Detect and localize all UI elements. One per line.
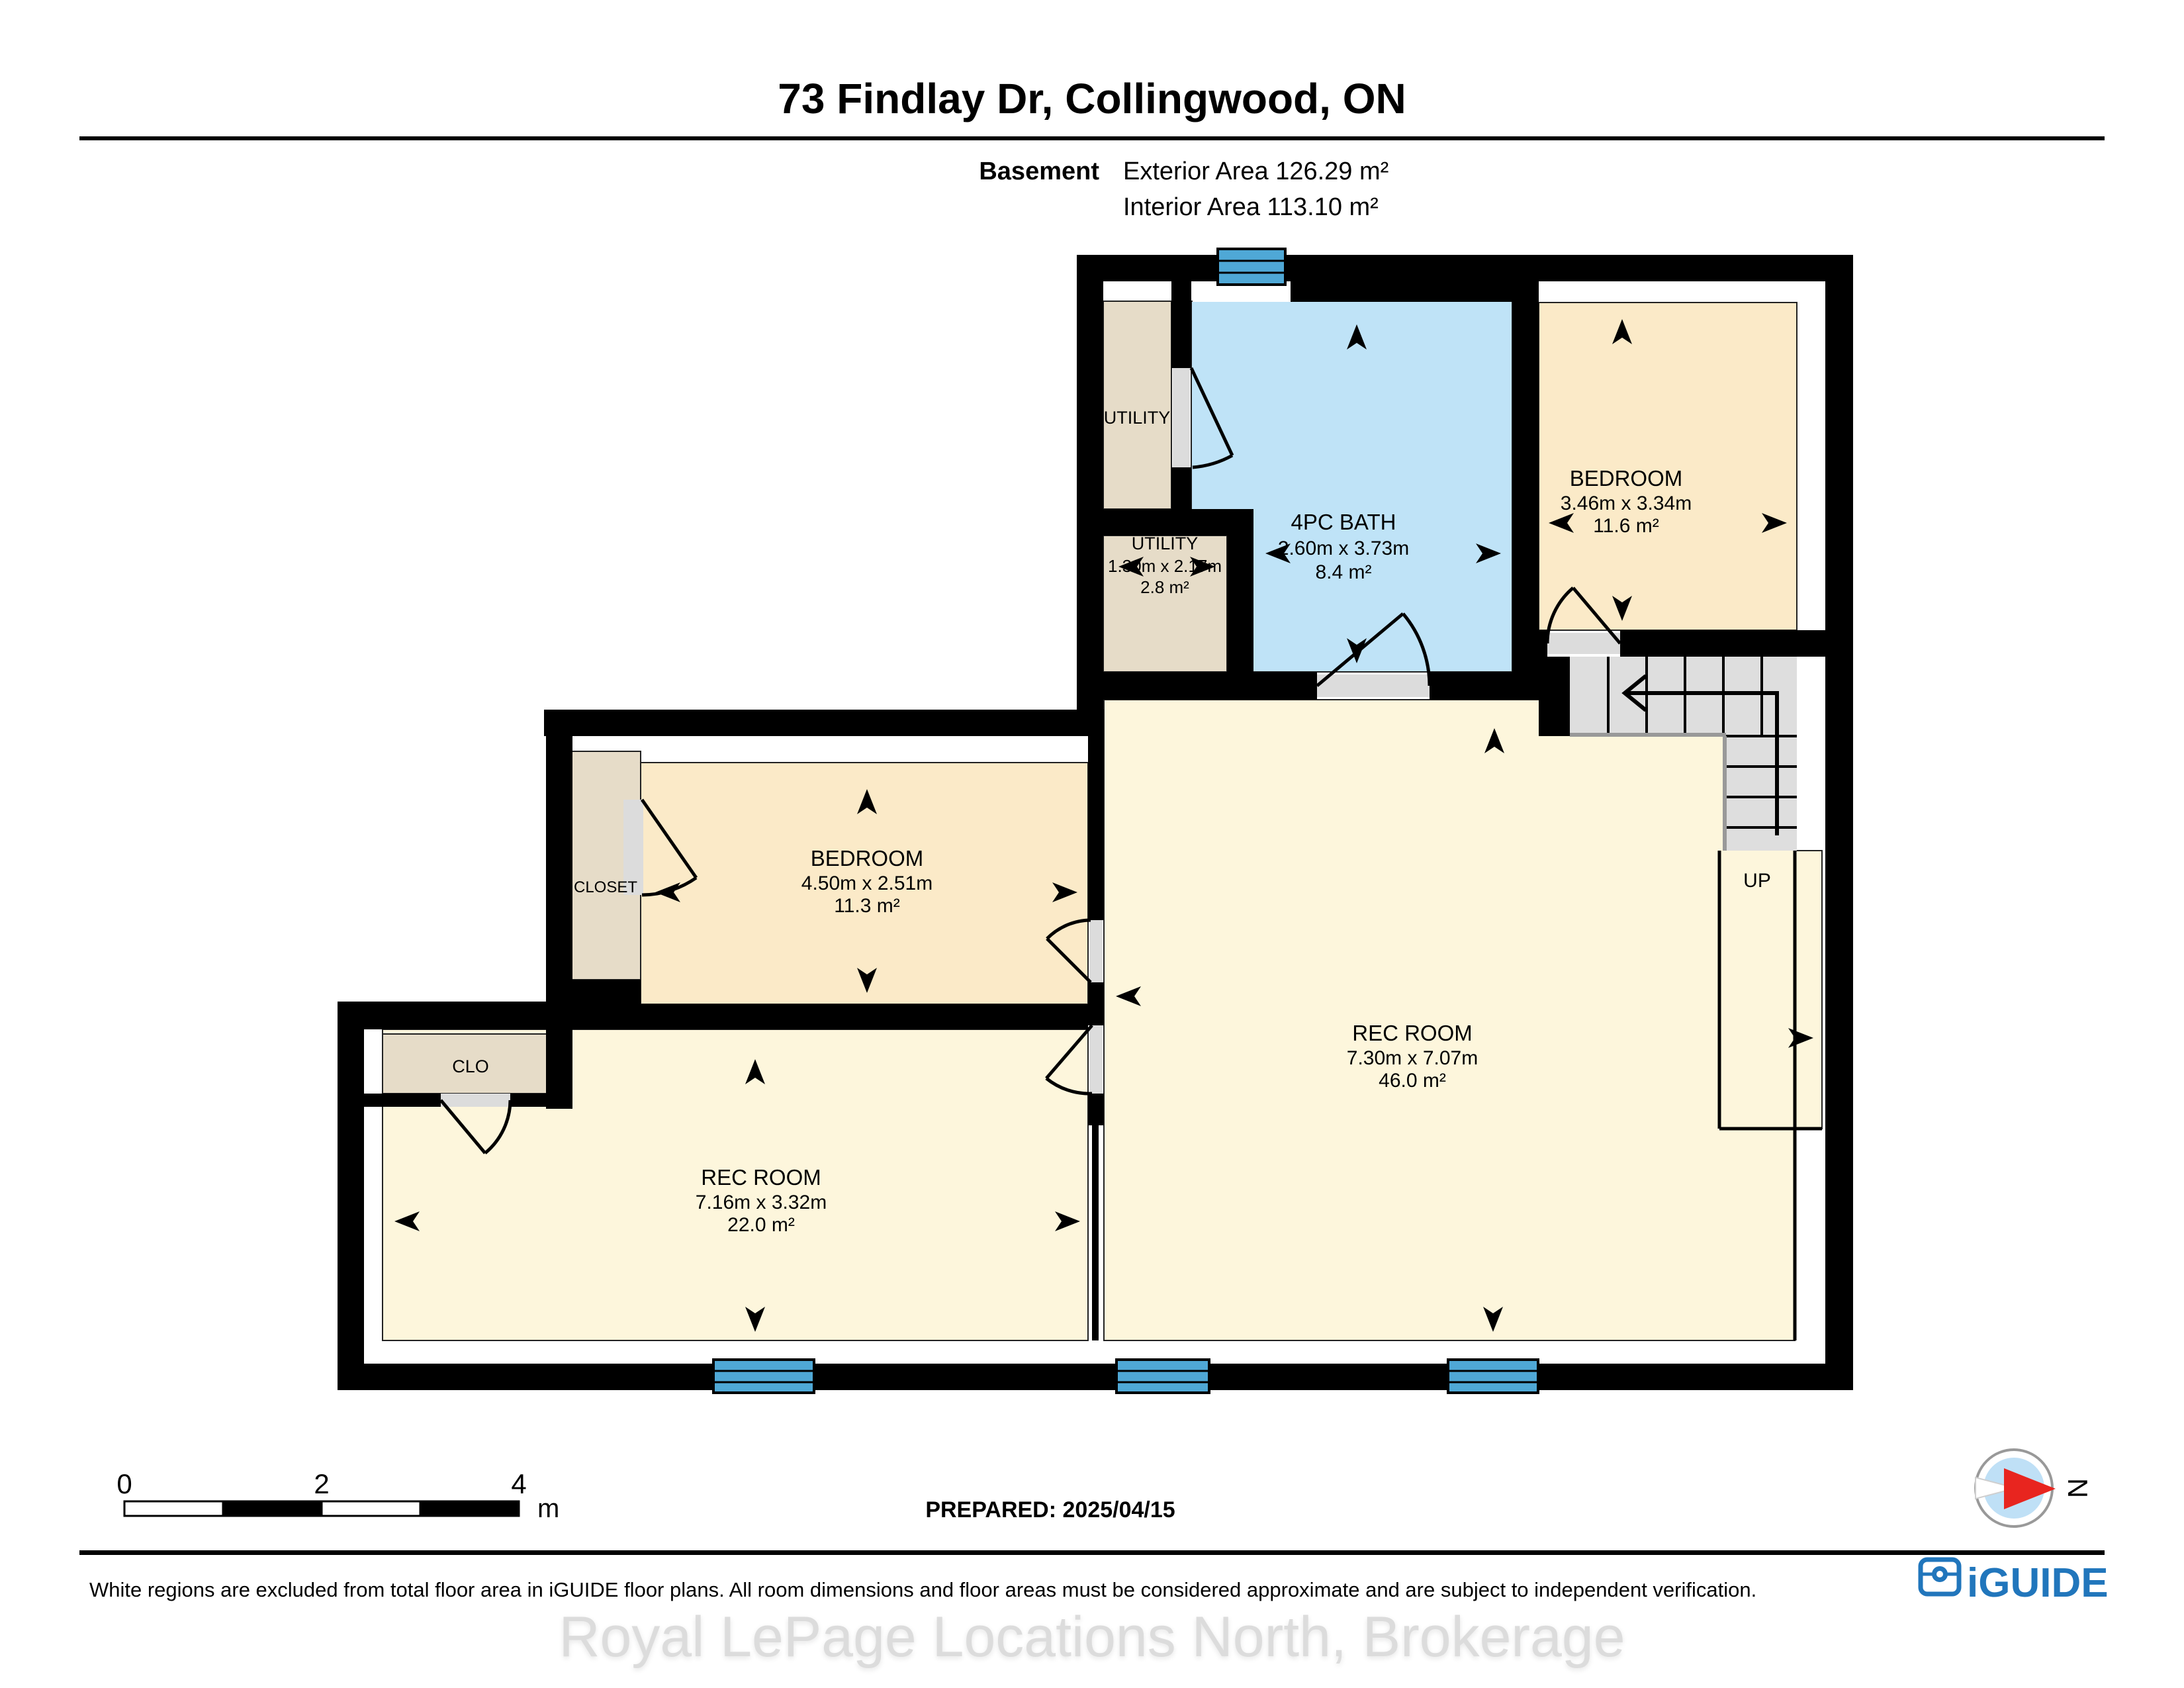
iguide-logo-text: iGUIDE (1967, 1560, 2109, 1606)
utility-small-label: UTILITY (1132, 534, 1199, 553)
bedroom-mid-dims: 4.50m x 2.51m (801, 872, 933, 894)
wall-rec-divider (1088, 1094, 1104, 1125)
scale-tick-4: 4 (511, 1468, 526, 1499)
excluded-strip (1797, 630, 1825, 851)
window-icon (713, 1360, 814, 1393)
excluded-strip (1103, 281, 1171, 302)
wall-clo-bottom (510, 1094, 559, 1107)
rec-room-left-dims: 7.16m x 3.32m (696, 1192, 827, 1213)
utility-small-area: 2.8 m² (1140, 577, 1189, 597)
utility-top-label: UTILITY (1104, 408, 1171, 428)
wall-clo-bottom (364, 1094, 441, 1107)
wall-bottom (338, 1364, 1853, 1390)
wall-mid-horizontal (544, 710, 1104, 736)
door-jamb (1173, 368, 1190, 467)
window-icon (1448, 1360, 1538, 1393)
bedroom-right-area: 11.6 m² (1593, 515, 1659, 537)
wall-left-lower (338, 1002, 364, 1390)
wall-segment (1253, 672, 1317, 700)
bedroom-right-label: BEDROOM (1570, 466, 1683, 491)
bedroom-right-dims: 3.46m x 3.34m (1561, 492, 1692, 514)
rec-room-left-label: REC ROOM (701, 1165, 821, 1190)
bath-area: 8.4 m² (1315, 561, 1371, 583)
excluded-strip (1797, 281, 1825, 630)
rec-room-right-label: REC ROOM (1352, 1021, 1473, 1045)
door-jamb (441, 1094, 510, 1107)
wall-bath-bedroom (1512, 281, 1539, 700)
bath-dims: 2.60m x 3.73m (1278, 538, 1409, 559)
wall-top (1077, 255, 1853, 281)
scale-tick-2: 2 (314, 1468, 329, 1499)
rec-room-right-area: 46.0 m² (1379, 1070, 1446, 1092)
wall-rec-divider (1088, 736, 1104, 920)
wall-segment (570, 980, 641, 1004)
wall-segment (1171, 467, 1191, 509)
stairs-up-label: UP (1743, 870, 1771, 892)
wall-segment (1291, 281, 1512, 302)
closet-label: CLOSET (574, 878, 637, 896)
wall-left-upper (1077, 255, 1103, 736)
stairs-lower-run (1726, 736, 1797, 851)
iguide-logo: iGUIDE (1921, 1560, 2109, 1606)
scale-tick-0: 0 (116, 1468, 132, 1499)
rec-room-right-floor (1104, 700, 1795, 1340)
excluded-strip (645, 736, 1085, 763)
excluded-strip (1539, 281, 1797, 303)
floor-plan-page: 73 Findlay Dr, Collingwood, ON Basement … (0, 0, 2184, 1688)
wall-right (1825, 255, 1853, 1390)
wall-step (338, 1002, 572, 1029)
wall-utility-divider (1103, 509, 1253, 536)
wall-bedroom-right-bottom (1620, 630, 1825, 657)
clo-label: CLO (452, 1056, 489, 1076)
brokerage-watermark: Royal LePage Locations North, Brokerage (0, 1605, 2184, 1670)
wall-segment (1171, 281, 1191, 368)
utility-top-floor (1103, 301, 1171, 509)
excluded-strip (364, 1029, 383, 1340)
floor-plan-drawing: UTILITY 4PC BATH 2.60m x 3.73m 8.4 m² BE… (0, 0, 2184, 1688)
door-jamb (1089, 920, 1103, 982)
compass-north-label: N (2062, 1478, 2093, 1498)
wall-segment (1077, 672, 1253, 700)
door-jamb (1547, 633, 1620, 654)
stair-corridor-floor (1795, 851, 1822, 1129)
wall-mid-left (546, 710, 572, 1109)
excluded-strip (364, 1342, 1795, 1364)
bath-label: 4PC BATH (1291, 510, 1396, 534)
rec-room-left-area: 22.0 m² (727, 1214, 795, 1236)
bedroom-mid-label: BEDROOM (811, 846, 924, 870)
prepared-date-label: PREPARED: 2025/04/15 (0, 1497, 2101, 1523)
door-jamb (1317, 675, 1430, 697)
wall-rec-thin-divider (1092, 1125, 1099, 1340)
wall-rec-divider (1088, 982, 1104, 1025)
footer-divider (79, 1550, 2105, 1555)
rec-room-right-dims: 7.30m x 7.07m (1347, 1047, 1478, 1069)
door-jamb (1089, 1025, 1103, 1094)
utility-small-dims: 1.30m x 2.17m (1108, 556, 1222, 576)
wall-bedroom-mid-bottom (572, 1004, 1088, 1029)
disclaimer-text: White regions are excluded from total fl… (89, 1578, 1756, 1602)
wall-segment (1539, 630, 1547, 657)
wall-stair-left (1539, 657, 1570, 736)
bedroom-mid-area: 11.3 m² (834, 895, 899, 917)
window-icon (1218, 249, 1285, 285)
window-icon (1116, 1360, 1209, 1393)
